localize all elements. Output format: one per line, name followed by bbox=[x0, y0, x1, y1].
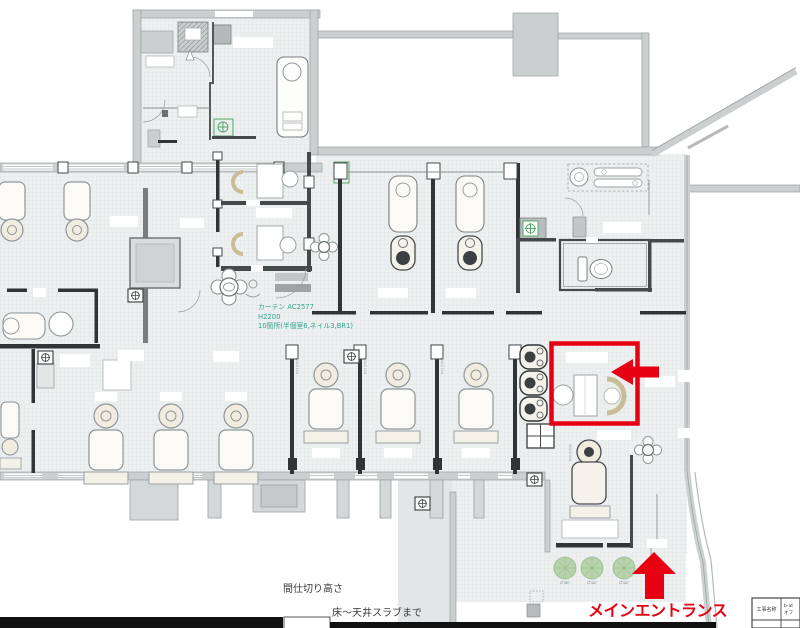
stool bbox=[282, 171, 298, 187]
floor-plan-drawing: WAGON WAGON WAGON WAGON bbox=[0, 0, 800, 628]
curtain-note-line1: カーテン AC2577 bbox=[258, 303, 314, 311]
desk bbox=[257, 164, 283, 198]
cabinet bbox=[37, 363, 54, 388]
corner-chair bbox=[0, 402, 21, 469]
legend-swatch-box bbox=[284, 617, 330, 628]
wagon-label: WAGON bbox=[440, 357, 445, 375]
partition-heading: 間仕切り高さ bbox=[283, 582, 343, 595]
title-block-value2: オフ bbox=[784, 610, 793, 616]
sink-icon bbox=[523, 221, 538, 236]
cabinet bbox=[275, 284, 311, 292]
label-whiteouts bbox=[312, 448, 490, 458]
title-block: 工事名称 b-at オフ bbox=[752, 598, 800, 628]
cabinet bbox=[275, 273, 308, 281]
curtain-note-line3: 10箇所(半個室6,ネイル3,BR1) bbox=[258, 321, 353, 330]
plant-label: chair bbox=[587, 580, 597, 585]
curtain-note-line2: H2200 bbox=[258, 313, 280, 321]
toilet bbox=[578, 257, 612, 281]
column-stubs bbox=[130, 480, 484, 520]
title-block-value1: b-at bbox=[784, 603, 793, 609]
wagon-label: WAGON bbox=[363, 357, 368, 375]
bottom-black-bar bbox=[0, 617, 283, 628]
outlet-plus-icon bbox=[344, 350, 359, 363]
shampoo-chair bbox=[520, 371, 547, 395]
diagonal-wall-edge bbox=[652, 68, 796, 151]
bottom-black-bar-thin bbox=[330, 622, 716, 628]
main-entrance-label: メインエントランス bbox=[588, 601, 727, 620]
plant-label: chair bbox=[560, 580, 570, 585]
shampoo-chair bbox=[520, 345, 547, 369]
desk bbox=[257, 226, 283, 260]
right-wall-line bbox=[687, 155, 709, 628]
shampoo-chair bbox=[520, 397, 547, 421]
partition-line1: 床～天井スラブまで bbox=[332, 606, 422, 619]
title-block-label: 工事名称 bbox=[756, 606, 776, 613]
wagon-label: WAGON bbox=[295, 357, 300, 375]
outlet-plus-icon bbox=[415, 497, 430, 510]
outlet-plus-icon bbox=[38, 351, 53, 364]
cabinet bbox=[103, 360, 131, 390]
plant-label: chair bbox=[619, 580, 629, 585]
grid-table bbox=[527, 424, 554, 448]
equipment-box bbox=[213, 25, 231, 44]
treatment-bed bbox=[277, 57, 308, 137]
outlet-plus-icon bbox=[128, 289, 143, 302]
right-wall-road-edge bbox=[687, 155, 709, 628]
styling-chair bbox=[0, 182, 25, 241]
lounge-chair bbox=[3, 313, 45, 339]
plant-icon bbox=[613, 557, 635, 579]
stool bbox=[280, 237, 296, 253]
wagon-label: WAGON bbox=[568, 444, 573, 462]
shampoo-bed bbox=[456, 176, 484, 270]
plant-icon bbox=[554, 557, 576, 579]
diagonal-wall bbox=[652, 71, 796, 154]
shaft-block bbox=[513, 13, 558, 76]
reception-desk bbox=[574, 375, 597, 416]
styling-chair bbox=[64, 182, 90, 241]
shampoo-bed bbox=[389, 176, 417, 270]
floor-plan-page: WAGON WAGON WAGON WAGON bbox=[0, 0, 800, 628]
chair-circle bbox=[604, 388, 620, 404]
chair-circle bbox=[553, 385, 573, 405]
counter bbox=[146, 56, 174, 67]
outlet-plus-icon bbox=[527, 473, 542, 486]
plant-icon bbox=[581, 557, 603, 579]
round-table bbox=[49, 312, 73, 336]
label-whiteout bbox=[233, 37, 273, 48]
